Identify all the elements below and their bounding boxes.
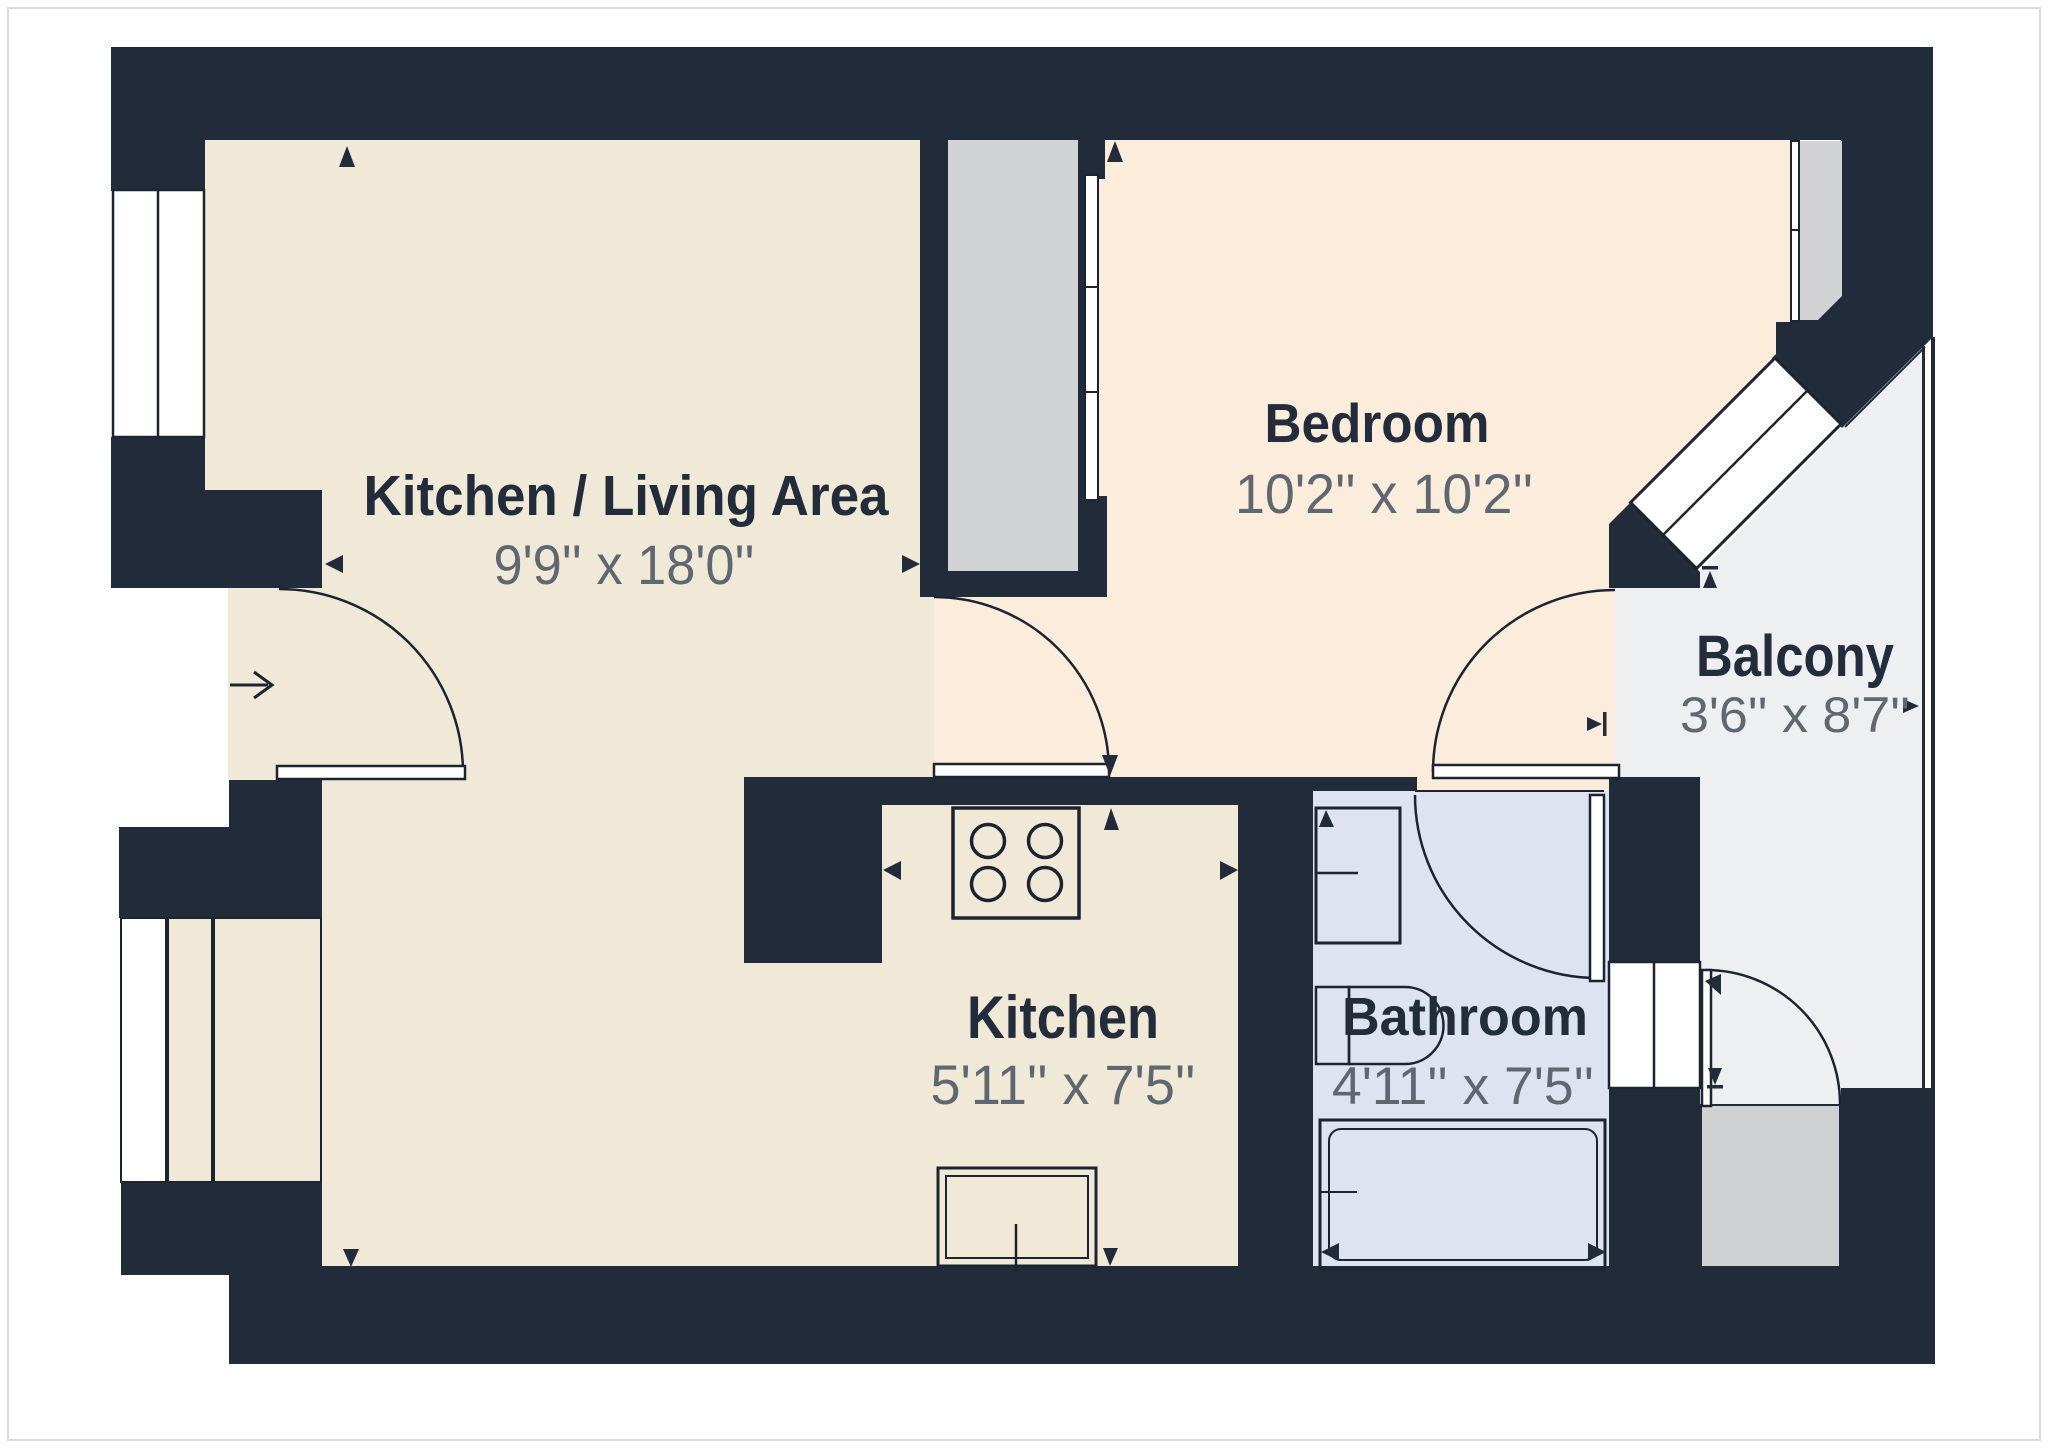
svg-text:9'9'' x 18'0'': 9'9'' x 18'0'' xyxy=(494,533,755,596)
svg-text:5'11'' x 7'5'': 5'11'' x 7'5'' xyxy=(931,1053,1196,1116)
svg-text:Kitchen: Kitchen xyxy=(967,984,1159,1051)
svg-text:3'6'' x 8'7'': 3'6'' x 8'7'' xyxy=(1680,687,1910,743)
svg-text:Bedroom: Bedroom xyxy=(1265,392,1490,454)
svg-text:Kitchen / Living Area: Kitchen / Living Area xyxy=(364,464,890,528)
svg-text:Balcony: Balcony xyxy=(1696,624,1894,689)
svg-text:10'2'' x 10'2'': 10'2'' x 10'2'' xyxy=(1235,462,1533,525)
svg-text:4'11'' x 7'5'': 4'11'' x 7'5'' xyxy=(1332,1057,1594,1116)
svg-text:Bathroom: Bathroom xyxy=(1342,987,1588,1047)
